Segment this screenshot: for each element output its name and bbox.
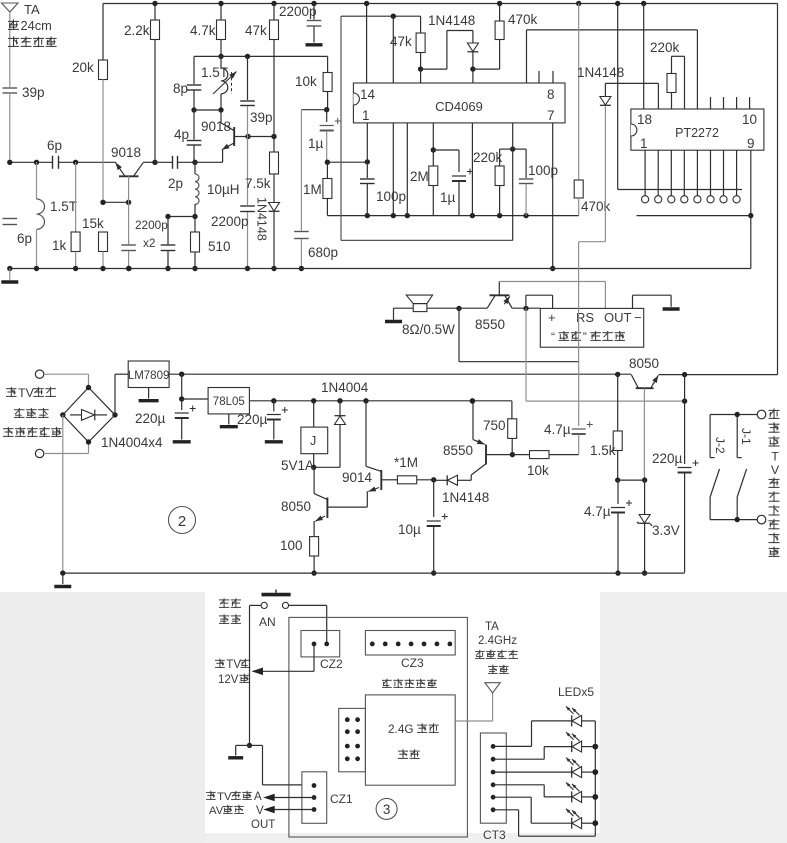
svg-text:8Ω/0.5W: 8Ω/0.5W [402,322,455,337]
svg-text:3: 3 [383,802,391,817]
svg-text:PT2272: PT2272 [675,126,719,140]
svg-text:4.7µ: 4.7µ [584,504,611,519]
svg-text:10k: 10k [295,74,317,89]
svg-text:9018: 9018 [201,119,231,134]
svg-text:8550: 8550 [475,317,505,332]
svg-text:9018: 9018 [111,145,141,160]
svg-text:T: T [771,449,779,463]
svg-text:10k: 10k [527,463,549,478]
svg-text:1: 1 [640,136,648,151]
svg-text:2.4GHz: 2.4GHz [478,635,517,647]
svg-text:78L05: 78L05 [213,396,245,408]
svg-text:2.4G: 2.4G [388,722,414,736]
svg-text:4p: 4p [174,127,189,142]
svg-text:4.7k: 4.7k [190,23,216,38]
svg-text:1N4148: 1N4148 [442,490,489,505]
svg-text:510: 510 [208,239,231,254]
svg-text:A: A [254,791,262,803]
svg-text:47k: 47k [245,23,267,38]
svg-text:CZ3: CZ3 [401,656,424,670]
svg-text:2200p: 2200p [279,4,317,19]
svg-text:7: 7 [547,108,555,123]
svg-text:AV: AV [209,805,224,817]
svg-text:7.5k: 7.5k [245,176,271,191]
svg-text:1M: 1M [303,182,322,197]
svg-text:1N4148: 1N4148 [428,13,475,28]
svg-text:TV: TV [226,659,241,671]
svg-text:14: 14 [360,87,376,102]
svg-text:220k: 220k [650,40,680,55]
svg-text:3.3V: 3.3V [652,523,680,538]
svg-text:750: 750 [483,418,506,433]
svg-text:J: J [310,434,316,448]
svg-text:TV: TV [18,386,35,400]
svg-text:−: − [634,310,642,325]
svg-text:8: 8 [547,87,555,102]
svg-text:9014: 9014 [342,470,373,485]
svg-text:2.2k: 2.2k [124,23,150,38]
svg-text:OUT: OUT [604,310,632,325]
svg-text:10: 10 [742,112,757,127]
svg-text:12V: 12V [218,674,239,686]
svg-text:4.7µ: 4.7µ [544,422,571,437]
svg-text:24cm: 24cm [21,18,52,33]
svg-text:8050: 8050 [629,356,659,371]
svg-text:680p: 680p [308,245,338,260]
svg-text:220µ: 220µ [135,411,166,426]
svg-text:1N4148: 1N4148 [255,197,269,241]
svg-text:TV: TV [217,791,232,803]
svg-text:1: 1 [362,108,370,123]
svg-text:6p: 6p [47,138,62,153]
svg-text:CZ1: CZ1 [330,792,353,806]
svg-text:1µ: 1µ [308,136,324,151]
svg-text:V: V [771,463,780,477]
svg-text:100p: 100p [528,163,558,178]
svg-text:J-1: J-1 [739,428,753,445]
svg-text:470k: 470k [581,199,611,214]
svg-text:47k: 47k [390,34,412,49]
svg-text:LM7809: LM7809 [128,370,170,382]
svg-text:18: 18 [637,112,652,127]
svg-text:9: 9 [747,136,755,151]
svg-text:20k: 20k [72,60,94,75]
svg-text:100: 100 [280,538,303,553]
svg-text:220k: 220k [473,150,503,165]
svg-text:1.5T: 1.5T [50,199,77,214]
svg-text:+: + [548,310,556,325]
svg-text:“: “ [551,330,555,344]
svg-text:5V1A: 5V1A [281,458,314,473]
svg-text:*1M: *1M [394,455,418,470]
svg-text:J-2: J-2 [713,437,727,454]
svg-text:2200p: 2200p [211,214,249,229]
svg-text:8050: 8050 [281,499,311,514]
svg-text:AN: AN [259,615,276,629]
svg-text:2200p: 2200p [135,218,168,232]
svg-text:1.5k: 1.5k [590,443,616,458]
svg-text:220µ: 220µ [652,451,683,466]
svg-text:CZ2: CZ2 [320,657,343,671]
svg-text:2M: 2M [410,169,429,184]
svg-text:39p: 39p [22,85,45,100]
svg-text:LEDx5: LEDx5 [558,685,594,699]
svg-text:1.5T: 1.5T [201,65,228,80]
svg-text:V: V [256,805,264,817]
svg-text:OUT: OUT [251,819,275,831]
svg-text:8p: 8p [173,81,188,96]
svg-text:2p: 2p [168,176,183,191]
svg-text:1N4004x4: 1N4004x4 [101,435,163,450]
svg-text:100p: 100p [376,189,406,204]
svg-text:10µH: 10µH [207,182,240,197]
svg-text:TA: TA [485,621,499,633]
svg-text:8550: 8550 [443,443,473,458]
svg-text:2: 2 [178,513,186,530]
svg-text:CD4069: CD4069 [435,99,483,114]
svg-text:470k: 470k [508,12,538,27]
svg-text:15k: 15k [82,216,104,231]
svg-text:x2: x2 [143,236,155,250]
svg-text:6p: 6p [17,231,32,246]
svg-text:10µ: 10µ [398,522,421,537]
svg-text:39p: 39p [250,110,273,125]
svg-text:1N4004: 1N4004 [321,380,369,395]
svg-text:TA: TA [24,2,40,17]
svg-text:220µ: 220µ [237,412,268,427]
svg-text:CT3: CT3 [483,828,506,842]
svg-text:1µ: 1µ [440,190,456,205]
svg-text:1k: 1k [52,238,67,253]
svg-text:”: ” [583,330,587,344]
